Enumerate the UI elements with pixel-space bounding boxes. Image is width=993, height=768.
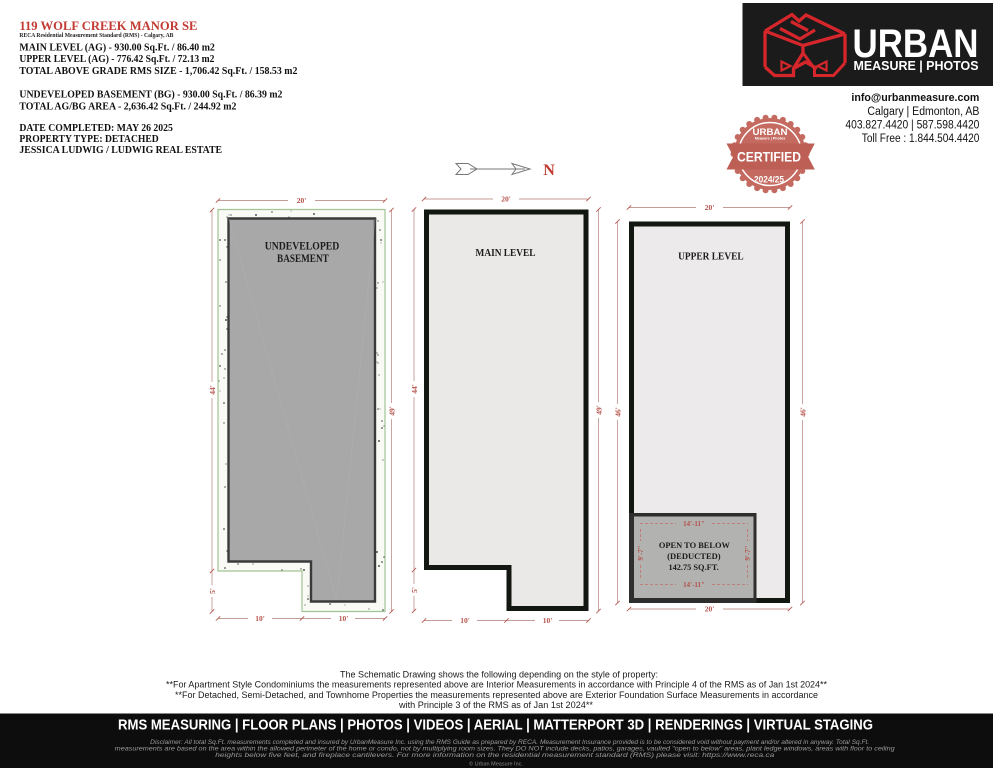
svg-text:© Urban Measure Inc.: © Urban Measure Inc. bbox=[469, 761, 523, 768]
svg-text:44': 44' bbox=[410, 384, 419, 394]
svg-text:MAIN LEVEL (AG) - 930.00 Sq.Ft: MAIN LEVEL (AG) - 930.00 Sq.Ft. / 86.40 … bbox=[19, 42, 215, 53]
svg-text:14'-11": 14'-11" bbox=[683, 520, 705, 528]
svg-text:44': 44' bbox=[208, 385, 217, 395]
svg-text:RMS MEASURING | FLOOR PLANS |: RMS MEASURING | FLOOR PLANS | PHOTOS | V… bbox=[118, 718, 873, 734]
svg-text:heights below five feet, and f: heights below five feet, and fireplace c… bbox=[215, 752, 775, 759]
svg-text:TOTAL ABOVE GRADE RMS SIZE - 1: TOTAL ABOVE GRADE RMS SIZE - 1,706.42 Sq… bbox=[19, 66, 297, 77]
svg-text:10': 10' bbox=[460, 616, 470, 625]
svg-text:119 WOLF CREEK MANOR SE: 119 WOLF CREEK MANOR SE bbox=[19, 18, 197, 33]
svg-text:MEASURE | PHOTOS: MEASURE | PHOTOS bbox=[854, 58, 979, 73]
svg-text:20': 20' bbox=[705, 203, 715, 212]
svg-text:TOTAL AG/BG AREA - 2,636.42 Sq: TOTAL AG/BG AREA - 2,636.42 Sq.Ft. / 244… bbox=[19, 102, 236, 113]
svg-text:UPPER LEVEL: UPPER LEVEL bbox=[678, 251, 744, 262]
svg-text:142.75 SQ.FT.: 142.75 SQ.FT. bbox=[668, 562, 718, 572]
svg-text:PROPERTY TYPE: DETACHED: PROPERTY TYPE: DETACHED bbox=[19, 134, 158, 145]
svg-text:20': 20' bbox=[705, 605, 715, 614]
svg-text:CERTIFIED: CERTIFIED bbox=[737, 148, 801, 164]
svg-text:**For Apartment Style Condomin: **For Apartment Style Condominiums the m… bbox=[166, 680, 827, 690]
svg-text:20': 20' bbox=[297, 196, 307, 205]
svg-text:49': 49' bbox=[595, 405, 604, 415]
svg-text:2024/25: 2024/25 bbox=[754, 175, 784, 185]
svg-text:10': 10' bbox=[543, 616, 553, 625]
svg-text:(DEDUCTED): (DEDUCTED) bbox=[667, 551, 721, 561]
svg-text:46': 46' bbox=[614, 407, 623, 417]
svg-text:14'-11": 14'-11" bbox=[683, 581, 705, 589]
svg-text:JESSICA LUDWIG / LUDWIG REAL E: JESSICA LUDWIG / LUDWIG REAL ESTATE bbox=[19, 145, 222, 156]
svg-text:9'-7": 9'-7" bbox=[744, 545, 752, 560]
svg-text:5': 5' bbox=[410, 587, 419, 593]
svg-text:**For Detached, Semi-Detached,: **For Detached, Semi-Detached, and Townh… bbox=[175, 690, 818, 700]
svg-text:BASEMENT: BASEMENT bbox=[277, 253, 329, 265]
svg-text:with Principle 3 of the RMS a: with Principle 3 of the RMS as of Jan 1s… bbox=[398, 700, 594, 710]
svg-text:N: N bbox=[543, 162, 555, 179]
svg-text:DATE COMPLETED: MAY 26 2025: DATE COMPLETED: MAY 26 2025 bbox=[19, 123, 173, 134]
svg-text:20': 20' bbox=[501, 195, 511, 204]
svg-text:UNDEVELOPED: UNDEVELOPED bbox=[265, 241, 340, 253]
svg-text:10': 10' bbox=[339, 614, 349, 623]
svg-text:The Schematic Drawing shows th: The Schematic Drawing shows the followin… bbox=[340, 669, 658, 679]
svg-text:MAIN LEVEL: MAIN LEVEL bbox=[476, 248, 536, 259]
svg-text:UNDEVELOPED BASEMENT (BG) - 93: UNDEVELOPED BASEMENT (BG) - 930.00 Sq.Ft… bbox=[19, 90, 282, 101]
svg-text:46': 46' bbox=[799, 407, 808, 417]
svg-text:Toll Free : 1.844.504.4420: Toll Free : 1.844.504.4420 bbox=[862, 133, 980, 145]
svg-text:403.827.4420 | 587.598.4420: 403.827.4420 | 587.598.4420 bbox=[845, 120, 979, 132]
svg-text:Calgary | Edmonton, AB: Calgary | Edmonton, AB bbox=[867, 106, 979, 118]
svg-text:9'-7": 9'-7" bbox=[637, 545, 645, 560]
svg-text:UPPER LEVEL (AG) - 776.42 Sq.F: UPPER LEVEL (AG) - 776.42 Sq.Ft. / 72.13… bbox=[19, 54, 214, 65]
svg-text:OPEN TO BELOW: OPEN TO BELOW bbox=[659, 540, 730, 550]
svg-text:Measure | Photos: Measure | Photos bbox=[755, 137, 786, 141]
svg-text:info@urbanmeasure.com: info@urbanmeasure.com bbox=[851, 92, 979, 104]
svg-text:RECA Residential Measurement S: RECA Residential Measurement Standard (R… bbox=[19, 32, 173, 39]
svg-text:49': 49' bbox=[388, 406, 397, 416]
svg-text:10': 10' bbox=[255, 614, 265, 623]
svg-text:5': 5' bbox=[208, 588, 217, 594]
